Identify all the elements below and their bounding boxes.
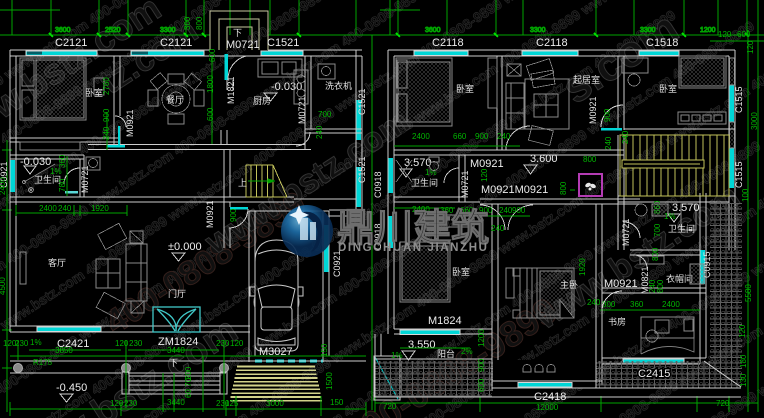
svg-text:C2118: C2118 xyxy=(432,37,464,49)
svg-text:230: 230 xyxy=(15,339,29,348)
svg-text:C2418: C2418 xyxy=(534,391,566,403)
svg-text:1%: 1% xyxy=(391,351,403,360)
svg-text:C0918: C0918 xyxy=(373,171,383,198)
svg-text:600: 600 xyxy=(208,48,217,62)
svg-text:120: 120 xyxy=(738,324,747,338)
svg-text:3.550: 3.550 xyxy=(408,339,436,351)
svg-text:3440: 3440 xyxy=(167,398,185,407)
svg-text:660: 660 xyxy=(453,132,467,141)
svg-text:900: 900 xyxy=(475,132,489,141)
svg-text:M0921: M0921 xyxy=(205,200,215,228)
svg-text:C2415: C2415 xyxy=(638,368,670,380)
svg-text:900: 900 xyxy=(512,206,526,215)
svg-text:门厅: 门厅 xyxy=(168,288,186,299)
svg-text:M0921M0921: M0921M0921 xyxy=(481,184,548,196)
svg-text:厨房: 厨房 xyxy=(253,95,271,106)
svg-text:C2118: C2118 xyxy=(536,37,568,49)
svg-text:卧室: 卧室 xyxy=(452,266,470,277)
svg-text:2400: 2400 xyxy=(39,204,57,213)
svg-text:240: 240 xyxy=(621,130,630,144)
svg-text:120: 120 xyxy=(746,40,755,54)
svg-text:1920: 1920 xyxy=(91,204,109,213)
svg-text:130: 130 xyxy=(739,373,748,387)
svg-text:100: 100 xyxy=(741,188,750,202)
svg-text:3850: 3850 xyxy=(55,346,73,355)
svg-text:客厅: 客厅 xyxy=(48,257,66,268)
svg-text:衣帽间: 衣帽间 xyxy=(666,273,693,284)
svg-text:卧室: 卧室 xyxy=(85,87,103,98)
svg-text:3300: 3300 xyxy=(530,27,546,34)
svg-text:180: 180 xyxy=(739,354,748,368)
svg-text:240: 240 xyxy=(315,125,324,139)
svg-text:1920: 1920 xyxy=(578,258,587,276)
svg-text:800: 800 xyxy=(656,279,665,293)
svg-text:800: 800 xyxy=(559,181,568,195)
svg-text:M0821: M0821 xyxy=(640,266,650,294)
svg-text:360: 360 xyxy=(630,300,644,309)
svg-text:R175: R175 xyxy=(33,358,53,367)
svg-text:餐厅: 餐厅 xyxy=(166,94,184,105)
svg-text:230: 230 xyxy=(124,399,138,408)
svg-text:2520: 2520 xyxy=(105,27,121,34)
svg-text:4500: 4500 xyxy=(0,277,7,295)
svg-text:3300: 3300 xyxy=(160,27,176,34)
svg-text:900: 900 xyxy=(603,108,612,122)
svg-text:C2121: C2121 xyxy=(160,37,192,49)
svg-text:600: 600 xyxy=(737,30,751,39)
svg-text:240: 240 xyxy=(604,136,613,150)
svg-text:M0721: M0721 xyxy=(297,96,307,124)
svg-text:M0721: M0721 xyxy=(80,165,90,193)
svg-text:M0921: M0921 xyxy=(470,158,504,170)
svg-text:3600: 3600 xyxy=(55,27,71,34)
svg-text:900: 900 xyxy=(229,208,238,222)
svg-text:240: 240 xyxy=(497,132,511,141)
svg-text:C1515: C1515 xyxy=(734,161,744,188)
svg-text:600: 600 xyxy=(477,378,486,392)
svg-text:C1521: C1521 xyxy=(357,156,367,183)
svg-text:M1821: M1821 xyxy=(226,76,236,104)
svg-text:120: 120 xyxy=(230,339,244,348)
svg-text:书房: 书房 xyxy=(608,316,626,327)
svg-text:600: 600 xyxy=(206,107,215,121)
svg-text:3300: 3300 xyxy=(640,27,656,34)
svg-text:DINGCHUAN JIANZHU: DINGCHUAN JIANZHU xyxy=(338,242,489,254)
svg-text:360: 360 xyxy=(58,154,67,168)
svg-text:3600: 3600 xyxy=(425,27,441,34)
svg-text:卧室: 卧室 xyxy=(659,83,677,94)
svg-text:下: 下 xyxy=(169,358,178,368)
svg-text:230: 230 xyxy=(129,339,143,348)
svg-text:60 70: 60 70 xyxy=(184,377,193,398)
svg-text:720: 720 xyxy=(383,402,397,411)
svg-text:5580: 5580 xyxy=(744,284,753,302)
svg-text:卧室: 卧室 xyxy=(456,83,474,94)
svg-text:卫生间: 卫生间 xyxy=(668,223,695,234)
svg-text:1500: 1500 xyxy=(325,372,334,390)
svg-text:M0921: M0921 xyxy=(604,278,638,290)
svg-text:2760: 2760 xyxy=(102,77,111,95)
svg-text:230: 230 xyxy=(216,339,230,348)
svg-text:200: 200 xyxy=(184,366,193,380)
svg-text:阳台: 阳台 xyxy=(437,348,455,359)
svg-text:300: 300 xyxy=(183,16,192,30)
svg-text:C1521: C1521 xyxy=(267,37,299,49)
svg-text:M0921: M0921 xyxy=(125,109,135,137)
svg-text:3000: 3000 xyxy=(750,112,759,130)
svg-text:900: 900 xyxy=(477,358,486,372)
svg-text:M0721: M0721 xyxy=(621,218,631,246)
svg-text:洗衣机: 洗衣机 xyxy=(325,80,352,91)
svg-text:120: 120 xyxy=(115,339,129,348)
svg-text:1%: 1% xyxy=(30,338,42,347)
svg-text:1200: 1200 xyxy=(477,329,486,347)
svg-text:C1515: C1515 xyxy=(734,86,744,113)
svg-text:C1521: C1521 xyxy=(357,88,367,115)
svg-text:M0721: M0721 xyxy=(460,170,470,198)
svg-text:240: 240 xyxy=(58,204,72,213)
svg-text:120: 120 xyxy=(718,30,732,39)
svg-text:3.570: 3.570 xyxy=(672,202,700,214)
svg-text:120: 120 xyxy=(110,399,124,408)
svg-text:2400: 2400 xyxy=(412,132,430,141)
svg-text:3.600: 3.600 xyxy=(530,153,558,165)
svg-text:900: 900 xyxy=(102,108,111,122)
svg-text:2400: 2400 xyxy=(662,300,680,309)
svg-text:720: 720 xyxy=(716,399,730,408)
svg-text:240: 240 xyxy=(102,126,111,140)
svg-text:150: 150 xyxy=(330,398,344,407)
svg-text:C2121: C2121 xyxy=(55,37,87,49)
svg-text:卫生间: 卫生间 xyxy=(411,177,438,188)
svg-text:800: 800 xyxy=(651,247,660,261)
svg-text:M0721: M0721 xyxy=(226,39,260,51)
svg-text:125: 125 xyxy=(225,399,239,408)
svg-text:起居室: 起居室 xyxy=(573,74,600,85)
svg-text:700: 700 xyxy=(653,223,662,237)
svg-text:700: 700 xyxy=(318,110,332,119)
svg-text:-0.450: -0.450 xyxy=(56,382,87,394)
svg-text:C0921: C0921 xyxy=(332,250,342,277)
svg-text:780: 780 xyxy=(58,178,67,192)
svg-text:12000: 12000 xyxy=(536,403,559,412)
svg-text:M0921: M0921 xyxy=(588,96,598,124)
svg-text:800: 800 xyxy=(195,16,204,30)
svg-text:240: 240 xyxy=(587,298,601,307)
svg-text:2400: 2400 xyxy=(0,177,7,195)
svg-text:M1824: M1824 xyxy=(428,315,462,327)
svg-text:1200: 1200 xyxy=(700,27,716,34)
svg-text:下: 下 xyxy=(233,28,242,38)
svg-text:1800: 1800 xyxy=(206,75,215,93)
svg-text:C1518: C1518 xyxy=(646,37,678,49)
svg-text:240: 240 xyxy=(491,224,505,233)
svg-text:主卧: 主卧 xyxy=(560,279,578,290)
svg-text:3000: 3000 xyxy=(266,399,284,408)
svg-text:800: 800 xyxy=(583,155,597,164)
svg-text:240: 240 xyxy=(499,206,513,215)
svg-text:120: 120 xyxy=(480,168,489,182)
svg-text:±0.000: ±0.000 xyxy=(168,241,202,253)
svg-text:上: 上 xyxy=(238,178,247,188)
svg-text:150: 150 xyxy=(320,343,329,357)
svg-text:1%: 1% xyxy=(664,212,676,221)
